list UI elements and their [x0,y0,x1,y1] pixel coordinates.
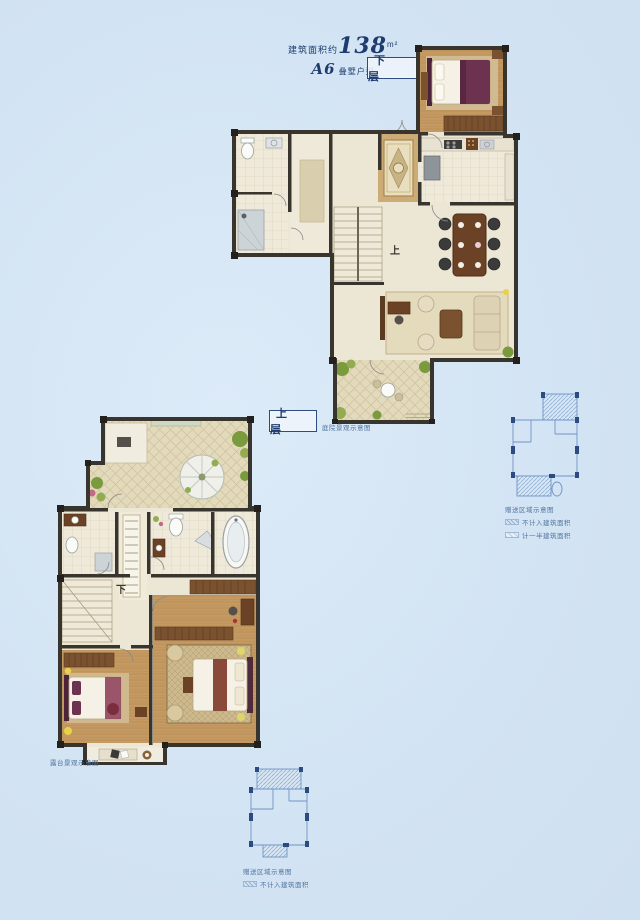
foyer-rug [384,140,413,196]
toilet [242,143,254,159]
lamp [65,668,71,674]
lamp [237,713,245,721]
shower [95,553,112,571]
legend-label: 不计入建筑面积 [260,879,309,889]
cushion-light [121,750,129,758]
legend-right: 赠送区域示意图 不计入建筑面积 计一半建筑面积 [505,504,571,540]
bed-pillow [235,663,244,681]
wine-cabinet [466,138,478,150]
wardrobe [444,116,503,131]
legend-swatch-hatch [505,519,519,525]
armchair [418,334,434,350]
bed-headboard [247,657,253,713]
dresser [421,72,428,100]
upper-floor-label: 上 层 [269,410,317,432]
side-table [183,677,193,693]
legend-item: 不计入建筑面积 [505,517,571,527]
desk [241,599,254,625]
legend-swatch-hatch [243,881,257,887]
legend-swatch-light [505,532,519,538]
dining-chair [439,218,451,230]
nightstand [492,106,503,115]
bath-partition [236,192,272,195]
dining-chair [488,238,500,250]
bed-blanket-fold [460,60,466,104]
dining-chair [439,258,451,270]
lamp [237,647,245,655]
stairs-down [62,580,112,642]
dining-table [453,214,486,276]
lamp [64,727,72,735]
patio-chair [373,380,381,388]
sofa [474,296,500,350]
bathtub [223,516,249,568]
legend-label: 计一半建筑面积 [522,530,571,540]
nightstand [492,50,503,59]
plant [347,360,356,369]
floral-throw [107,703,119,715]
bed-pillow [72,681,81,695]
plant [97,493,106,502]
upper-floor-label-text: 上 层 [270,405,316,437]
cushion-dark [110,749,119,758]
upper-floor-plan: 下 [55,413,263,765]
page-background: 建筑面积约138m² A6 叠墅户型 下 层 [0,0,640,920]
toilet [170,518,183,536]
legend-item: 计一半建筑面积 [505,530,571,540]
fridge [424,156,440,180]
toilet-tank [241,138,254,143]
bed-runner [213,659,227,711]
patio-chair [395,393,403,401]
desk-chair [229,607,238,616]
hall-runner [300,160,324,222]
plant [91,477,103,489]
tv-console [380,296,385,340]
legend-item: 不计入建筑面积 [243,879,309,889]
stairs-up [334,207,382,281]
flower [159,522,163,526]
armchair [167,645,183,661]
armchair [167,705,183,721]
lower-plan-caption: 庭院景观示意图 [322,422,371,432]
hanging-rack [155,627,233,640]
keyplan-lower [505,390,590,498]
bed-headboard [64,675,69,721]
bath-sink [266,138,282,148]
plant [373,411,382,420]
lower-floor-plan: 上 [228,42,522,424]
upper-plan-caption: 露台景观示意图 [50,757,99,767]
plant [153,516,159,522]
plant [232,431,248,447]
legend-label: 不计入建筑面积 [522,517,571,527]
dining-chair [488,218,500,230]
wardrobe [64,653,114,667]
alcove-table [117,437,131,447]
legend-bottom: 赠送区域示意图 不计入建筑面积 [243,866,309,889]
plant [503,347,514,358]
plant [419,361,431,373]
dresser [135,707,147,717]
legend-bottom-title: 赠送区域示意图 [243,866,309,876]
decor-red [233,619,237,623]
bedroom-master [153,580,256,743]
keyplan-upper [243,765,323,861]
bed-pillow [235,687,244,705]
shower [238,210,264,250]
desk-chair [395,316,404,325]
floor-lamp [503,289,509,295]
side-counter [505,154,514,200]
stairs-up-label: 上 [390,244,400,257]
stairs-down-label: 下 [116,584,126,596]
coffee-table [440,310,462,338]
roof-terrace [88,419,250,508]
bed-pillow [72,701,81,715]
desk [388,302,410,314]
dining-set [439,214,500,276]
parasol [180,455,224,499]
wardrobe [190,580,256,594]
armchair [418,296,434,312]
dining-chair [439,238,451,250]
dining-chair [488,258,500,270]
toilet [66,537,78,553]
kitchen-sink [480,140,494,149]
bed-pillow [435,84,444,100]
legend-right-title: 赠送区域示意图 [505,504,571,514]
bedroom-left [62,650,150,743]
patio-table [381,383,395,397]
bed-pillow [435,64,444,80]
